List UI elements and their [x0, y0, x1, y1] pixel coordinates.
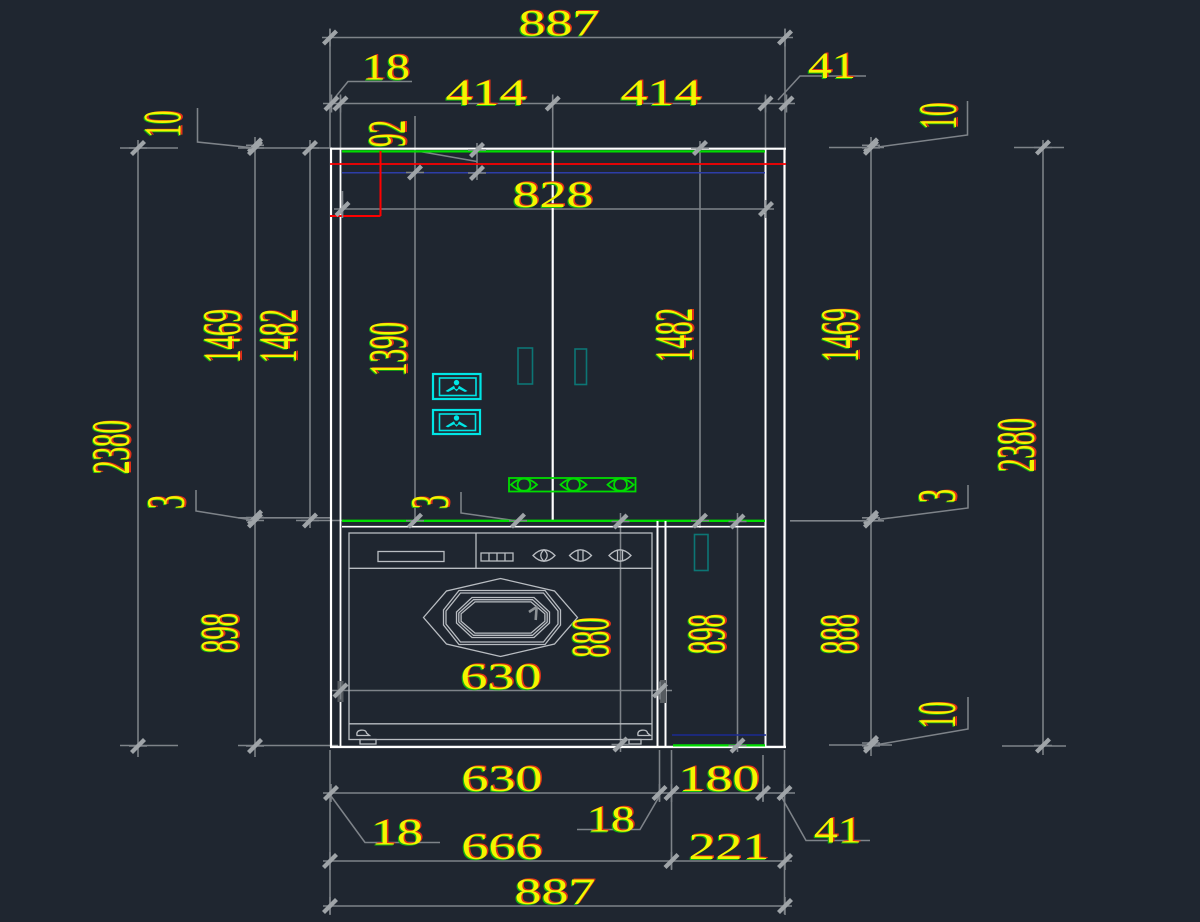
svg-text:414: 414	[446, 73, 527, 114]
svg-text:2380: 2380	[81, 420, 141, 474]
svg-text:18: 18	[371, 813, 423, 854]
svg-text:18: 18	[587, 800, 635, 841]
svg-text:828: 828	[513, 175, 594, 216]
svg-text:414: 414	[621, 73, 702, 114]
svg-text:880: 880	[561, 618, 621, 658]
svg-text:1390: 1390	[358, 322, 418, 376]
svg-text:180: 180	[679, 759, 760, 800]
svg-text:888: 888	[809, 614, 869, 654]
svg-text:1469: 1469	[192, 309, 252, 363]
svg-text:41: 41	[808, 46, 856, 87]
svg-text:10: 10	[907, 702, 967, 729]
svg-text:887: 887	[515, 872, 596, 913]
svg-text:898: 898	[677, 614, 737, 654]
svg-text:1482: 1482	[248, 309, 308, 363]
svg-text:898: 898	[190, 613, 250, 653]
svg-text:630: 630	[461, 657, 542, 698]
svg-text:2380: 2380	[986, 418, 1046, 472]
svg-text:887: 887	[519, 4, 600, 45]
svg-text:3: 3	[907, 489, 967, 503]
svg-text:1482: 1482	[644, 308, 704, 362]
svg-text:92: 92	[357, 120, 417, 147]
svg-text:1469: 1469	[810, 308, 870, 362]
svg-text:3: 3	[136, 495, 196, 509]
svg-text:10: 10	[908, 103, 968, 130]
svg-text:41: 41	[814, 811, 862, 852]
svg-text:630: 630	[462, 759, 543, 800]
svg-text:3: 3	[400, 495, 460, 509]
svg-text:666: 666	[462, 827, 543, 868]
svg-text:221: 221	[689, 827, 770, 868]
svg-text:18: 18	[362, 48, 410, 89]
svg-text:10: 10	[133, 111, 193, 138]
